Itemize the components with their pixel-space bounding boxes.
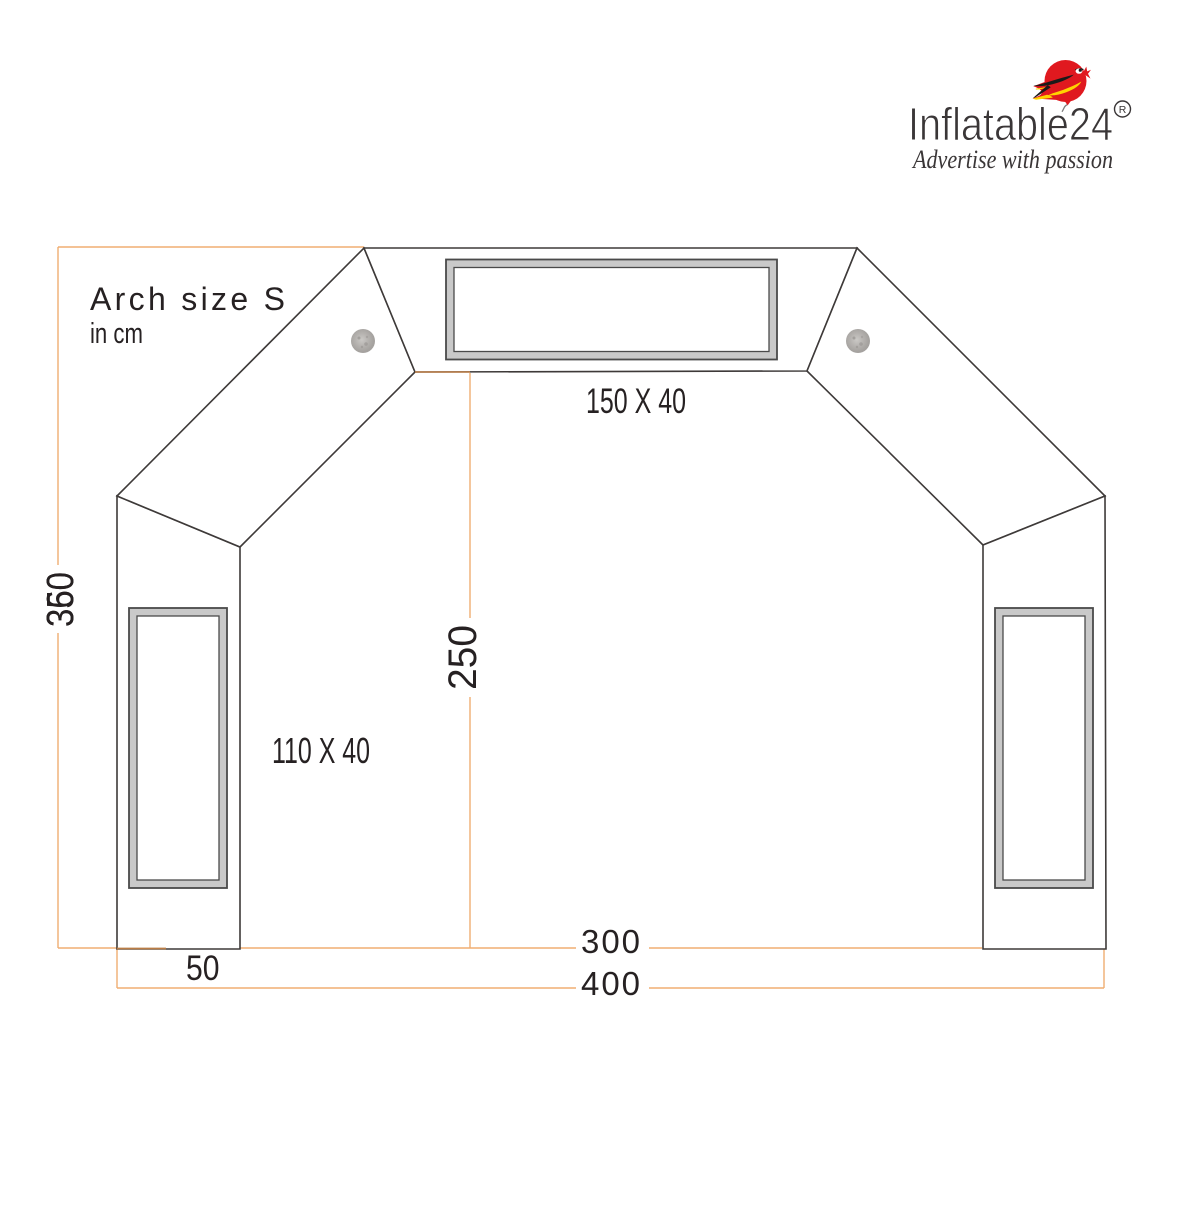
svg-text:50: 50 (186, 949, 220, 988)
svg-text:300: 300 (581, 923, 640, 960)
svg-text:Advertise with passion: Advertise with passion (911, 145, 1113, 174)
svg-text:Arch size S: Arch size S (90, 281, 285, 317)
svg-text:250: 250 (441, 625, 485, 690)
svg-text:110 X 40: 110 X 40 (272, 730, 370, 771)
svg-text:400: 400 (581, 965, 640, 1002)
svg-text:Inflatable24: Inflatable24 (908, 98, 1113, 150)
svg-text:R: R (1119, 104, 1127, 116)
svg-text:in cm: in cm (90, 318, 143, 350)
svg-text:150 X 40: 150 X 40 (586, 382, 686, 421)
svg-text:350: 350 (40, 572, 82, 627)
